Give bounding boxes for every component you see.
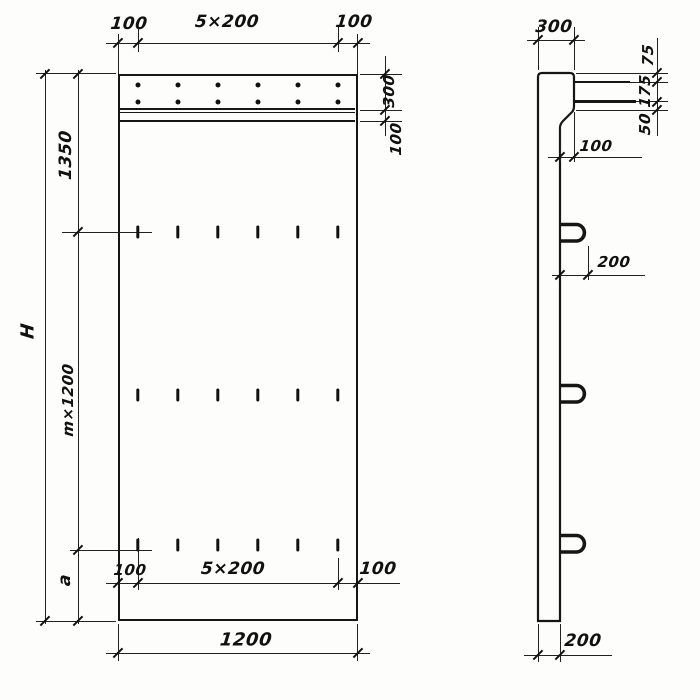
loop-slot-mark: [216, 389, 219, 402]
loop-slot-mark: [336, 389, 339, 402]
ext-line: [574, 27, 575, 70]
side-view-graphics: [0, 0, 700, 700]
dim-label-side-300: 300: [534, 17, 573, 37]
rebar-dot: [296, 83, 301, 88]
rebar-dot: [216, 100, 221, 105]
loop-slot-mark: [216, 539, 219, 552]
rebar-dot: [336, 83, 341, 88]
dim-label-loop-200: 200: [597, 253, 632, 271]
rebar-dot: [216, 83, 221, 88]
loop-slot-mark: [176, 539, 179, 552]
dim-label-side-bottom-200: 200: [563, 631, 602, 651]
rebar-bottom: [574, 100, 636, 103]
rebar-dot: [336, 100, 341, 105]
rebar-dot: [176, 100, 181, 105]
rebar-dot: [256, 100, 261, 105]
loop-slot-mark: [256, 539, 259, 552]
loop-slot-mark: [176, 389, 179, 402]
loop-slot-mark: [296, 539, 299, 552]
loop-slot-mark: [256, 389, 259, 402]
loop-slot-mark: [136, 389, 139, 402]
rebar-dot: [136, 83, 141, 88]
dim-label-75: 75: [639, 43, 657, 67]
loop-slot-mark: [296, 389, 299, 402]
rebar-dot: [136, 100, 141, 105]
technical-drawing-panel: 100 5×200 100 300 100 H 1350 m×1200 a 10…: [0, 0, 700, 700]
loop-slot-mark: [336, 226, 339, 239]
dim-line-side-100: [548, 157, 642, 158]
loop-slot-mark: [336, 539, 339, 552]
loop-slot-mark: [296, 226, 299, 239]
lifting-loop: [560, 225, 584, 242]
side-panel-outline: [538, 73, 574, 621]
dim-label-175: 175: [636, 74, 654, 109]
lifting-loop: [560, 536, 584, 553]
rebar-top: [574, 81, 630, 83]
loop-slot-mark: [176, 226, 179, 239]
dim-label-50: 50: [636, 112, 654, 136]
loop-slot-mark: [136, 539, 139, 552]
dim-label-side-100: 100: [579, 137, 614, 155]
dim-line-side-right: [657, 38, 658, 136]
rebar-dot: [176, 83, 181, 88]
loop-slot-mark: [216, 226, 219, 239]
rebar-dot: [256, 83, 261, 88]
dim-line-loop-200: [552, 275, 645, 276]
loop-slot-mark: [136, 226, 139, 239]
loop-slot-mark: [256, 226, 259, 239]
lifting-loop: [560, 386, 584, 403]
lifting-loops: [560, 225, 584, 553]
rebar-dot: [296, 100, 301, 105]
